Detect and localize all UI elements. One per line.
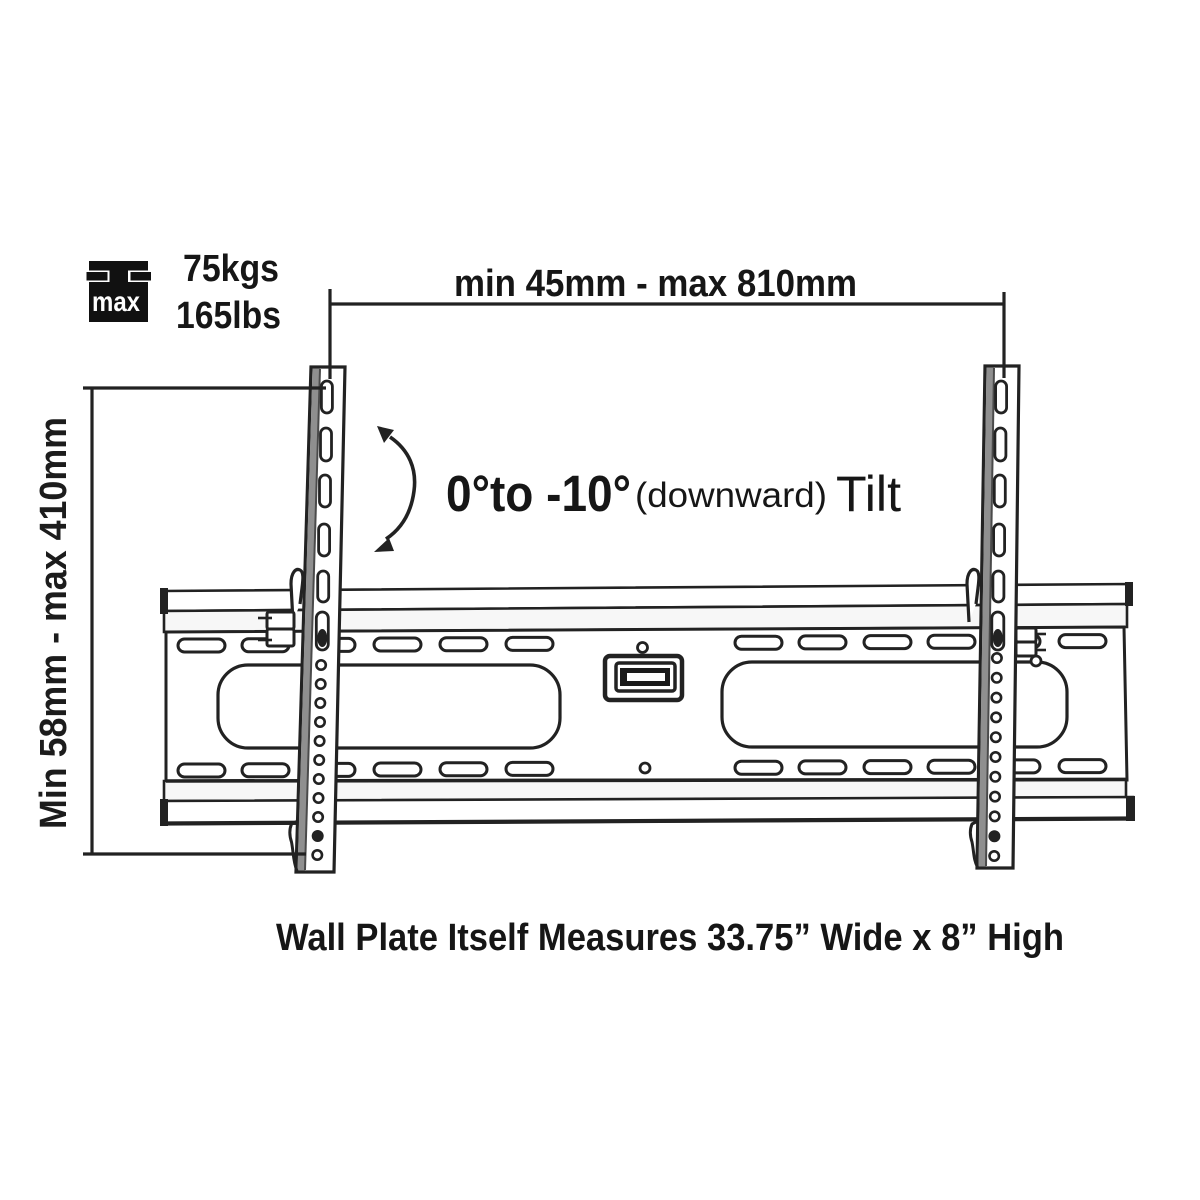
svg-text:0°to -10°: 0°to -10° [446,465,631,522]
svg-text:Tilt: Tilt [836,466,901,522]
svg-text:min 45mm - max 810mm: min 45mm - max 810mm [454,263,857,305]
svg-text:(downward): (downward) [635,476,827,515]
svg-text:165lbs: 165lbs [176,295,281,337]
svg-text:75kgs: 75kgs [183,248,279,290]
svg-text:Min 58mm - max 410mm: Min 58mm - max 410mm [33,417,75,829]
svg-text:max: max [92,286,140,317]
svg-text:Wall Plate Itself Measures 33.: Wall Plate Itself Measures 33.75” Wide x… [276,917,1064,959]
